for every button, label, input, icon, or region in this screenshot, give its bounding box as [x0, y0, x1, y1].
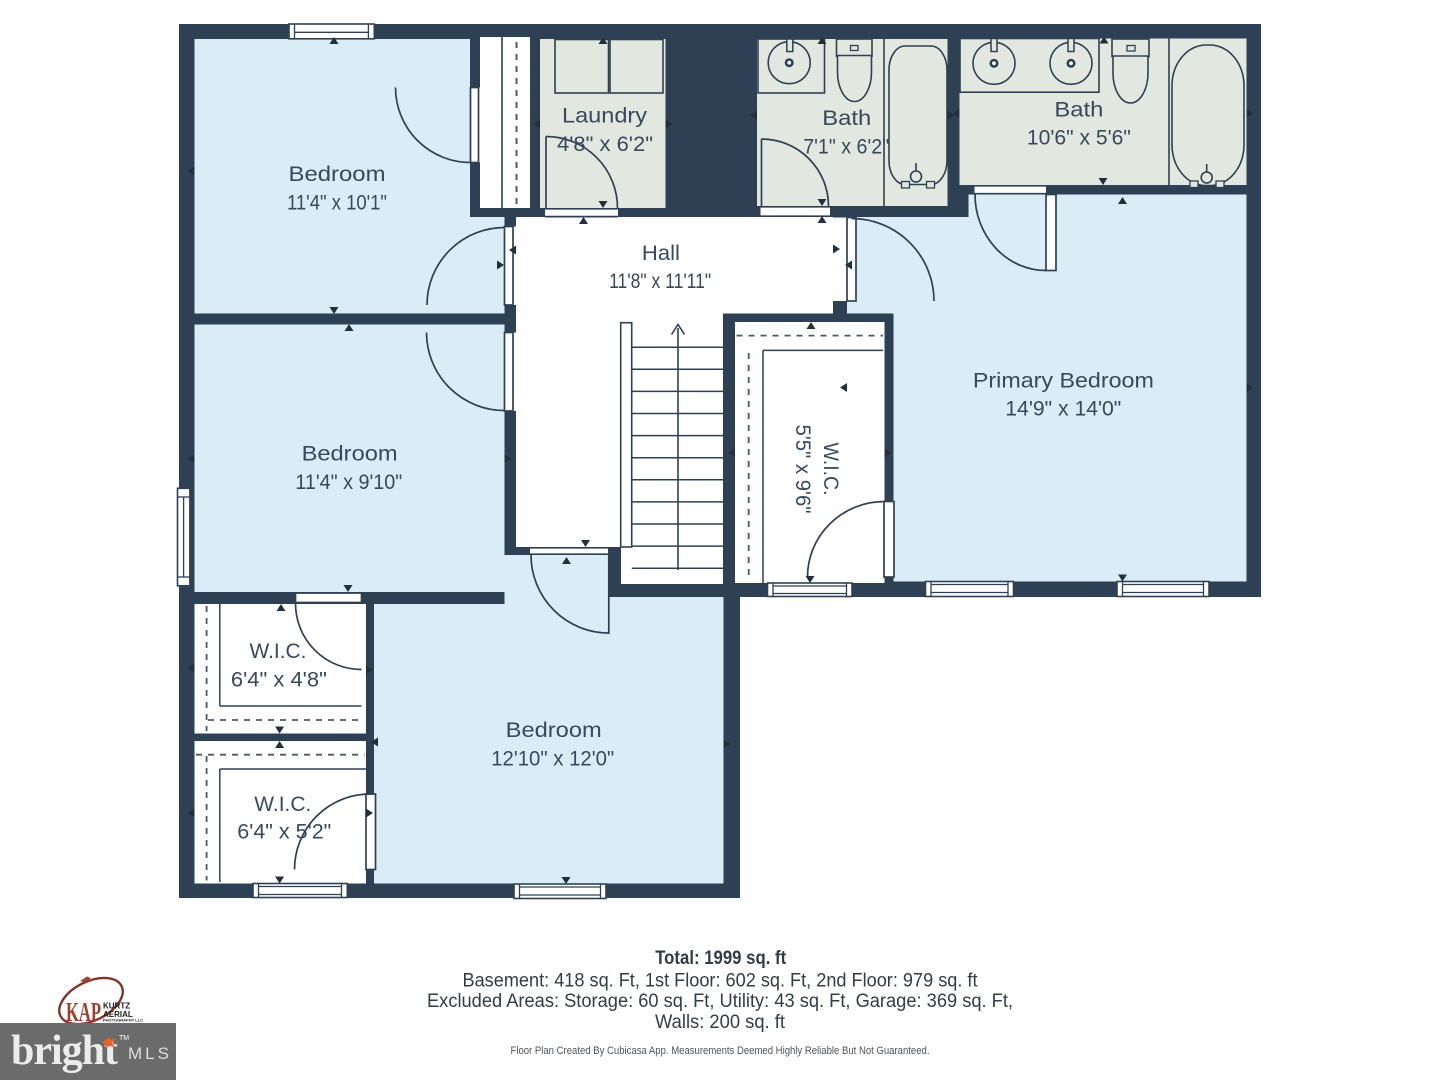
svg-text:Primary Bedroom: Primary Bedroom	[973, 370, 1154, 393]
svg-text:10'6" x 5'6": 10'6" x 5'6"	[1027, 127, 1131, 150]
svg-text:Total: 1999 sq. ft: Total: 1999 sq. ft	[655, 948, 787, 969]
svg-text:W.I.C.: W.I.C.	[254, 793, 311, 816]
svg-text:11'4" x 10'1": 11'4" x 10'1"	[287, 192, 387, 215]
svg-text:11'4" x 9'10": 11'4" x 9'10"	[295, 471, 402, 494]
svg-text:4'8" x 6'2": 4'8" x 6'2"	[557, 133, 653, 156]
svg-text:5'5" x 9'6": 5'5" x 9'6"	[791, 425, 814, 514]
svg-text:Bedroom: Bedroom	[302, 443, 398, 466]
svg-text:6'4" x 4'8": 6'4" x 4'8"	[231, 669, 327, 692]
svg-text:6'4" x 5'2": 6'4" x 5'2"	[237, 821, 331, 844]
svg-text:12'10" x 12'0": 12'10" x 12'0"	[491, 748, 614, 771]
svg-text:Bath: Bath	[1054, 99, 1103, 122]
svg-text:Floor Plan Created By Cubicasa: Floor Plan Created By Cubicasa App. Meas…	[511, 1045, 930, 1057]
svg-text:Basement: 418 sq. Ft, 1st Floo: Basement: 418 sq. Ft, 1st Floor: 602 sq.…	[463, 971, 979, 992]
svg-text:Bedroom: Bedroom	[506, 719, 602, 742]
svg-text:11'8" x 11'11": 11'8" x 11'11"	[609, 270, 711, 293]
svg-text:W.I.C.: W.I.C.	[250, 640, 307, 663]
svg-text:Laundry: Laundry	[562, 105, 648, 128]
svg-text:Bedroom: Bedroom	[289, 163, 386, 186]
svg-text:7'1" x 6'2": 7'1" x 6'2"	[803, 136, 889, 159]
svg-text:KAP: KAP	[66, 997, 101, 1027]
svg-text:Bath: Bath	[822, 107, 871, 130]
svg-text:MLS: MLS	[128, 1044, 172, 1063]
svg-text:Excluded Areas: Storage: 60 sq: Excluded Areas: Storage: 60 sq. Ft, Util…	[427, 991, 1013, 1012]
svg-text:PHOTOGRAPHY LLC: PHOTOGRAPHY LLC	[103, 1018, 143, 1023]
svg-text:Hall: Hall	[642, 242, 680, 265]
svg-text:Walls: 200 sq. ft: Walls: 200 sq. ft	[655, 1012, 786, 1033]
svg-text:14'9" x 14'0": 14'9" x 14'0"	[1005, 398, 1121, 421]
svg-text:TM: TM	[119, 1035, 129, 1042]
svg-text:W.I.C.: W.I.C.	[819, 443, 842, 496]
svg-text:bright: bright	[11, 1028, 118, 1074]
